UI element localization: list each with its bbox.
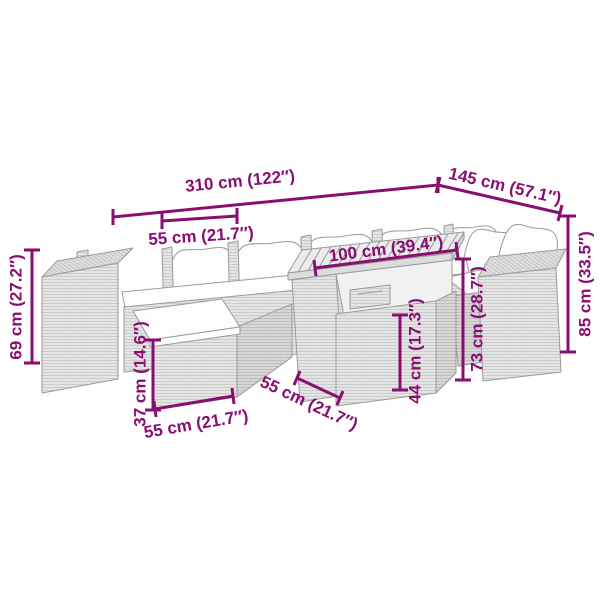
dim-line <box>560 216 576 352</box>
right-arm-cube <box>478 249 566 381</box>
dim-table-clearance-label: 44 cm (17.3″) <box>406 298 425 403</box>
dim-table-height-label: 73 cm (28.7″) <box>468 266 487 371</box>
dim-back-height: 85 cm (33.5″) <box>560 216 595 352</box>
dim-stool-height-label: 37 cm (14.6″) <box>131 321 150 426</box>
left-side-table <box>42 248 133 393</box>
dim-total-depth: 145 cm (57.1″) <box>436 164 563 221</box>
dim-back-height-label: 85 cm (33.5″) <box>576 231 595 336</box>
left-side-table-front <box>42 263 118 393</box>
dim-seat-width: 55 cm (21.7″) <box>148 208 255 249</box>
furniture-dimension-diagram: 310 cm (122″) 145 cm (57.1″) 85 cm (33.5… <box>0 0 600 600</box>
dim-line <box>24 250 40 363</box>
diagram-canvas: 310 cm (122″) 145 cm (57.1″) 85 cm (33.5… <box>0 0 600 600</box>
dim-total-width-label: 310 cm (122″) <box>184 166 296 196</box>
table-base-side <box>436 291 456 393</box>
right-arm-cube-front <box>478 268 561 381</box>
dim-left-height-label: 69 cm (27.2″) <box>7 254 26 359</box>
dim-left-height: 69 cm (27.2″) <box>7 250 41 363</box>
